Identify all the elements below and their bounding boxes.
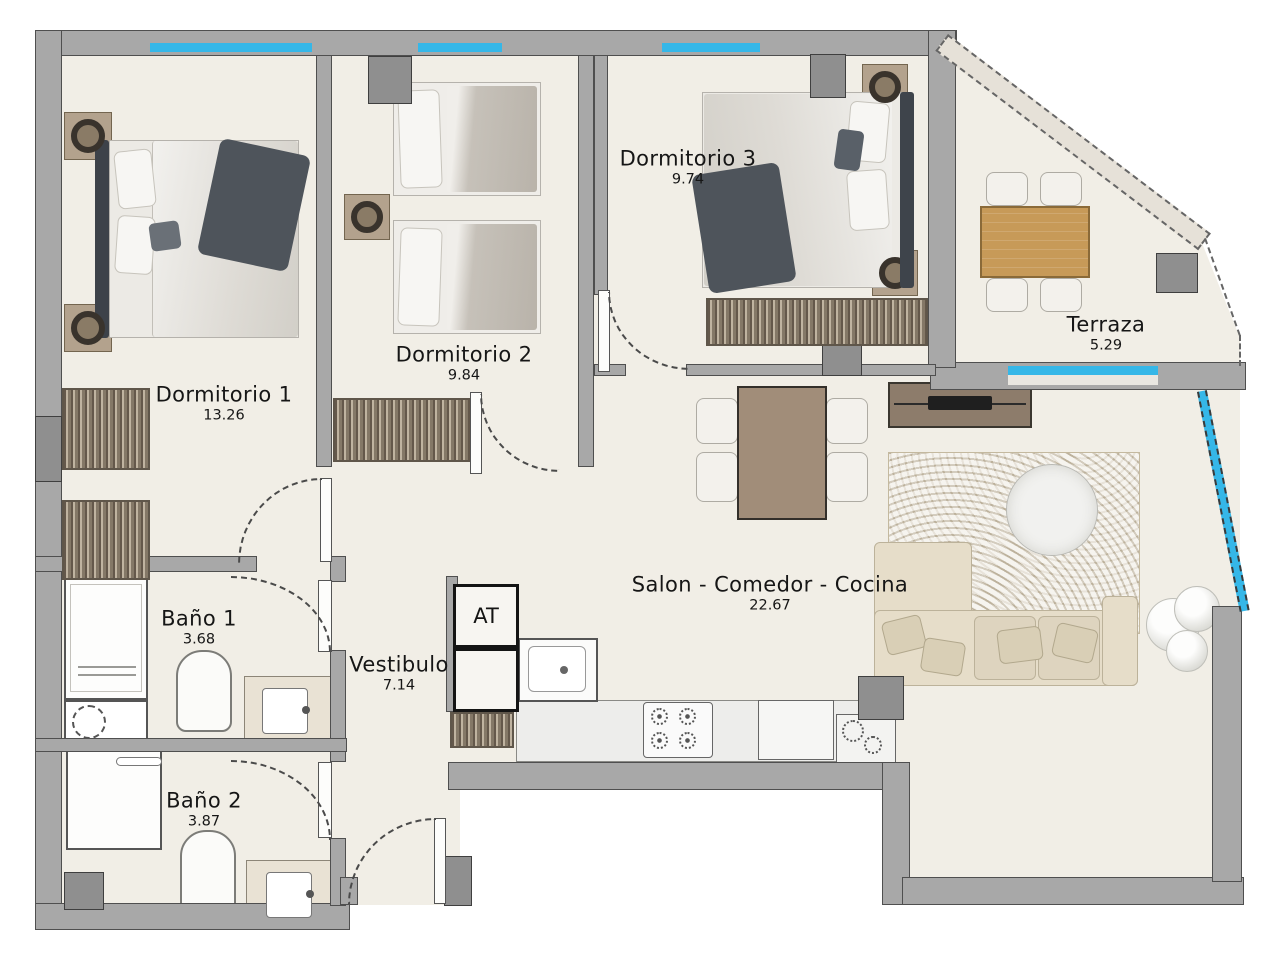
dining-table: [737, 386, 827, 520]
room-label-dormitorio-2: Dormitorio 2 9.84: [396, 343, 533, 386]
window-terrace-door: [1008, 366, 1158, 375]
column: [810, 54, 846, 98]
window-dorm1: [150, 43, 312, 52]
room-label-dormitorio-3: Dormitorio 3 9.74: [620, 147, 757, 190]
tv-icon: [928, 396, 992, 410]
terrace-chair: [1040, 278, 1082, 312]
wall-dorm1-dorm2: [316, 55, 332, 467]
toilet: [176, 650, 232, 732]
vanity-sink: [266, 872, 312, 918]
room-area: 3.68: [161, 632, 237, 649]
sofa-pillow: [996, 625, 1044, 664]
bed-pillow: [397, 227, 442, 326]
shower-drain-line: [78, 674, 136, 676]
column-left-wall: [35, 416, 62, 482]
washer-drum: [72, 705, 106, 739]
room-label-salon: Salon - Comedor - Cocina 22.67: [632, 573, 908, 616]
dining-chair: [826, 398, 868, 444]
toilet: [180, 830, 236, 914]
wall-bath-divider: [35, 738, 347, 752]
floor-plan: AT Dormitorio 1 13.26 Dormitorio 2 9.84 …: [0, 0, 1280, 960]
room-name: Dormitorio 2: [396, 343, 533, 368]
vanity-faucet: [306, 890, 314, 898]
wall-dorm3-south: [686, 364, 936, 376]
washer-drum: [842, 720, 864, 742]
wall-terrace-dorm3: [928, 30, 956, 368]
room-area: 22.67: [632, 598, 908, 615]
room-label-terraza: Terraza 5.29: [1067, 313, 1146, 356]
dining-chair: [826, 452, 868, 502]
window-sill: [1008, 375, 1158, 385]
sofa-armrest: [1102, 596, 1138, 686]
bed-pillow: [397, 89, 442, 188]
column-terrace: [1156, 253, 1198, 293]
washer-drum: [864, 736, 882, 754]
bed-duvet: [447, 86, 537, 192]
bed-headboard: [900, 92, 914, 288]
room-area: 3.87: [166, 814, 242, 831]
room-area: 13.26: [156, 408, 293, 425]
sink-basin: [528, 646, 586, 692]
wall-kitchen-bottom: [448, 762, 910, 790]
bed-duvet: [447, 224, 537, 330]
terrace-chair: [1040, 172, 1082, 206]
room-label-vestibulo: Vestibulo 7.14: [349, 653, 449, 696]
lamp: [71, 119, 105, 153]
lamp: [71, 311, 105, 345]
vanity-faucet: [302, 706, 310, 714]
room-name: Salon - Comedor - Cocina: [632, 573, 908, 598]
room-name: Dormitorio 3: [620, 147, 757, 172]
room-name: Baño 1: [161, 607, 237, 632]
wall-dorm2-hall: [578, 55, 594, 467]
terrace-chair: [986, 172, 1028, 206]
oven-appliance: [758, 700, 834, 760]
terrace-boundary-dashed-2: [1239, 335, 1241, 366]
wardrobe: [333, 398, 475, 462]
vanity-sink: [262, 688, 308, 734]
window-dorm3: [662, 43, 760, 52]
wardrobe: [62, 500, 150, 580]
dining-chair: [696, 398, 738, 444]
column-bath2: [64, 872, 104, 910]
lift-shaft: AT: [453, 584, 519, 648]
stove-burner: [679, 732, 696, 749]
room-name: Terraza: [1067, 313, 1146, 338]
wall-bottom-right: [902, 877, 1244, 905]
room-label-dormitorio-1: Dormitorio 1 13.26: [156, 383, 293, 426]
room-label-bano-2: Baño 2 3.87: [166, 789, 242, 832]
wardrobe: [62, 388, 150, 470]
dining-chair: [696, 452, 738, 502]
lamp: [351, 201, 383, 233]
column-entry: [444, 856, 472, 906]
accent-pillow: [148, 220, 182, 252]
sink-faucet: [560, 666, 568, 674]
terrace-chair: [986, 278, 1028, 312]
cabinet: [450, 712, 514, 748]
accent-pillow: [833, 128, 864, 171]
shaft-box: [453, 648, 519, 712]
terrace-dining-table: [980, 206, 1090, 278]
lift-shaft-label: AT: [473, 604, 499, 628]
shower-handle: [116, 757, 162, 766]
wall-bath-right-1: [330, 556, 346, 582]
column-kitchen: [858, 676, 904, 720]
room-area: 9.84: [396, 368, 533, 385]
room-area: 9.74: [620, 172, 757, 189]
window-dorm2: [418, 43, 502, 52]
shower-drain-line: [78, 666, 136, 668]
column: [368, 56, 412, 104]
bed-pillow: [846, 169, 890, 232]
room-area: 7.14: [349, 678, 449, 695]
wall-right: [1212, 606, 1242, 882]
bed-headboard: [95, 140, 109, 338]
room-label-bano-1: Baño 1 3.68: [161, 607, 237, 650]
stove-burner: [679, 708, 696, 725]
plant: [1166, 630, 1208, 672]
bed-pillow: [113, 148, 157, 210]
stove-burner: [651, 708, 668, 725]
room-name: Baño 2: [166, 789, 242, 814]
round-coffee-table: [1006, 464, 1098, 556]
wall-dorm3-left: [594, 55, 608, 295]
sofa-pillow: [920, 637, 967, 677]
room-name: Dormitorio 1: [156, 383, 293, 408]
room-area: 5.29: [1067, 338, 1146, 355]
wardrobe: [706, 298, 928, 346]
lamp: [869, 71, 901, 103]
room-name: Vestibulo: [349, 653, 449, 678]
stove-burner: [651, 732, 668, 749]
